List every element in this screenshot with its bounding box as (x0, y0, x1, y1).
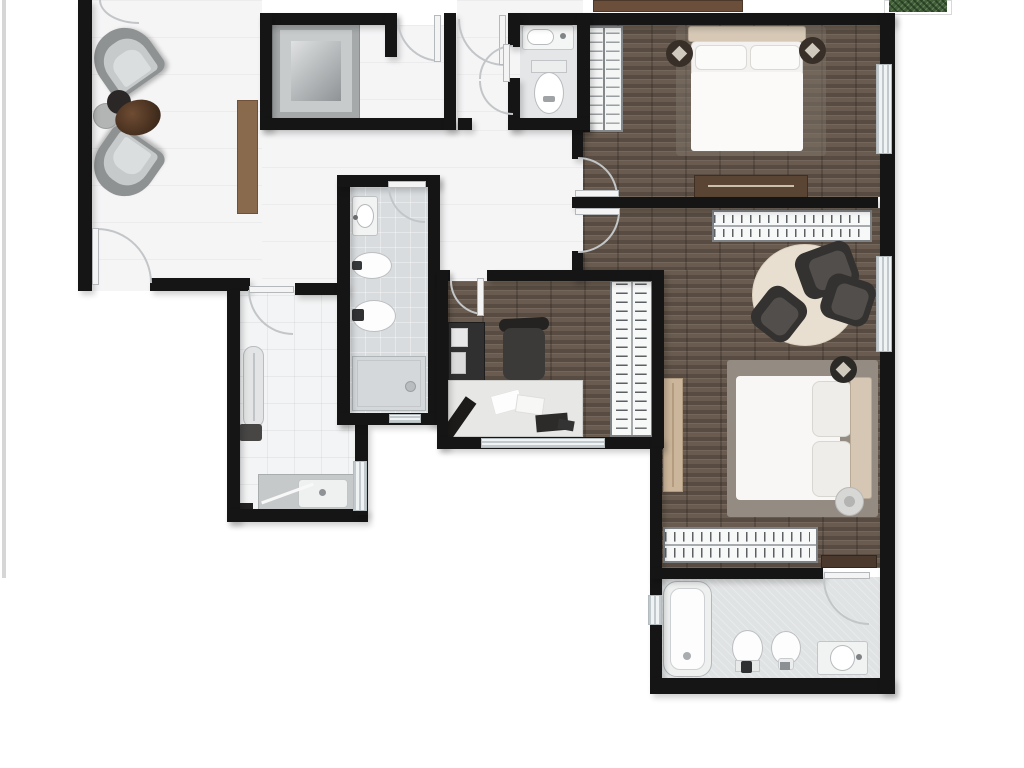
wall-bath2-left (337, 175, 350, 425)
bedroom1-pillow-left (695, 45, 747, 70)
office-chair-seat (503, 328, 545, 380)
bath2-sink-faucet (353, 215, 358, 220)
bedroom1-pillow-right (750, 45, 800, 70)
wall-vestibule-block (458, 118, 472, 130)
bath2-toilet-fitting (352, 309, 364, 321)
suite-plant (830, 356, 857, 383)
wall-kitchen-stub (385, 13, 397, 57)
bath1-toilet-bowl (534, 72, 564, 114)
wall-kitchen-right (444, 13, 456, 130)
wall-hall-divider-upper (572, 125, 583, 159)
bath2-shower-drain (405, 381, 416, 392)
window-laundry (353, 461, 367, 511)
bath3-bidet-fitting (780, 662, 790, 670)
suite-headboard (850, 377, 872, 499)
bath3-tub-drain (683, 652, 691, 660)
wall-bedroom1-suite (572, 197, 878, 208)
sideboard (237, 100, 258, 214)
wall-office-top (487, 270, 652, 281)
wall-bath3-top (650, 568, 823, 579)
floor-hallway (440, 130, 583, 283)
bath3-sink-bowl (830, 645, 855, 671)
window-suite (876, 256, 892, 352)
door-leaf-bath1 (503, 44, 510, 82)
wall-bottom-outer (650, 678, 895, 694)
left-edge-line (2, 0, 6, 578)
laundry-sink-drain (319, 489, 326, 496)
door-leaf-bath3 (824, 572, 870, 579)
suite-pillow-top (812, 381, 852, 437)
bath3-toilet-fitting (741, 661, 752, 673)
bath2-bidet-fitting (352, 261, 362, 270)
door-leaf-bedroom1 (575, 190, 619, 197)
bedroom1-dresser (694, 175, 808, 198)
suite-wardrobe-top (712, 210, 872, 242)
suite-side-table-center (844, 496, 855, 507)
bath2-sink-bowl (356, 204, 374, 228)
window-bath3 (648, 595, 662, 625)
bath1-sink-bowl (527, 29, 554, 45)
bedroom1-wardrobe-shelves (585, 26, 623, 132)
shaft-box-inner (291, 41, 341, 101)
suite-wardrobe-bottom (663, 527, 818, 563)
wall-bath1-right (577, 13, 590, 132)
shower-glass-marker (389, 414, 421, 423)
bedroom1-nightstand-right (799, 37, 826, 64)
office-wardrobe (610, 280, 653, 437)
floor-living-lower (262, 130, 340, 295)
suite-bench (663, 378, 683, 492)
wall-bath1-left-upper (508, 13, 520, 47)
bath1-toilet-seat (543, 96, 555, 102)
wall-laundry-bottom (227, 509, 368, 522)
window-bedroom1 (876, 64, 892, 154)
wall-kitchen-top (260, 13, 397, 25)
door-leaf-kitchen (434, 15, 441, 62)
door-leaf-bath2 (388, 181, 426, 188)
door-leaf-laundry (249, 286, 294, 293)
wall-kitchen-bottom (260, 118, 456, 130)
floor-plan (0, 0, 1024, 768)
bedroom1-headboard (688, 26, 806, 42)
office-papers-2 (515, 394, 545, 416)
door-leaf-entry-living (92, 228, 99, 285)
office-device (451, 352, 466, 374)
window-office (481, 438, 605, 448)
wall-top-main (508, 13, 895, 25)
wall-suite-left-lower (650, 448, 662, 579)
ironing-board (243, 346, 264, 428)
door-leaf-office (477, 278, 484, 316)
wall-living-left (78, 0, 92, 291)
wall-office-right (652, 270, 664, 448)
corridor-dresser-cutoff (593, 0, 743, 12)
bedroom1-duvet (691, 72, 803, 151)
suite-low-dresser (821, 555, 877, 568)
wall-laundry-left (227, 290, 240, 522)
planter-greens (889, 0, 947, 12)
bedroom1-nightstand-left (666, 40, 693, 67)
wall-bath3-left (650, 578, 662, 678)
wall-kitchen-left (260, 13, 272, 130)
bath1-faucet (560, 33, 566, 39)
wall-office-left (437, 270, 448, 448)
bath3-faucet (856, 654, 862, 660)
wall-bath1-bottom (508, 118, 590, 130)
office-printer (451, 328, 468, 347)
floor-living-east (340, 130, 440, 175)
laundry-stool (239, 424, 262, 441)
door-leaf-suite (575, 208, 620, 215)
